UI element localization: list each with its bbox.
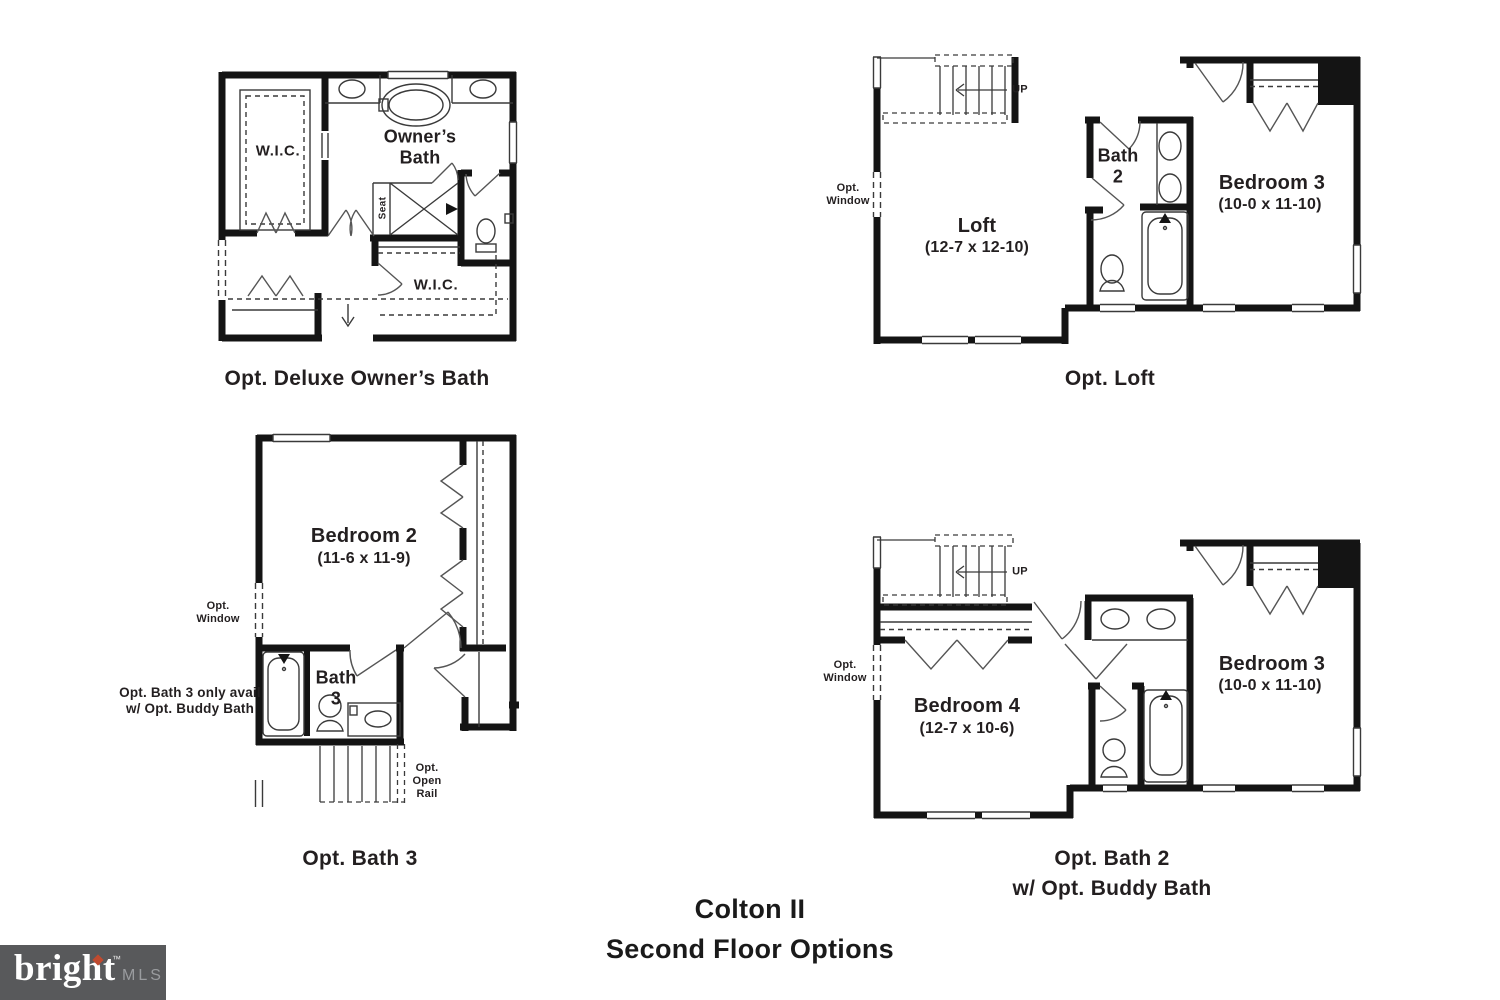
plan-deluxe-owners-bath: W.I.C. Owner’s Bath Seat W.I.C.: [210, 60, 525, 350]
room-label-owners-bath: Owner’s Bath: [384, 126, 456, 167]
closet: [1250, 80, 1318, 131]
caption-opt-loft: Opt. Loft: [1065, 364, 1155, 394]
room-label-bedroom3: Bedroom 3: [1219, 172, 1325, 194]
brightmls-wordmark: bright: [14, 947, 116, 990]
sheet-title: Colton II Second Floor Options: [606, 889, 894, 969]
stairs-down-arrow-icon: [342, 304, 354, 326]
label-opt-window: Opt. Window: [823, 659, 866, 685]
label-shower-seat: Seat: [377, 197, 388, 220]
walls: [222, 72, 516, 341]
stairs: [877, 535, 1013, 605]
brightmls-logo: bright ™ MLS: [0, 945, 166, 1000]
plan-opt-loft: UP Opt. Window Loft (12-7 x 12-10) Bath …: [820, 45, 1380, 355]
plan-opt-bath3-drawing: [120, 425, 525, 820]
room-label-loft: Loft: [958, 215, 997, 237]
caption-deluxe-owners-bath: Opt. Deluxe Owner’s Bath: [224, 364, 489, 394]
room-label-bath2: Bath 2: [1098, 145, 1139, 186]
room-label-bedroom2: Bedroom 2: [311, 525, 417, 547]
room-dims-bedroom2: (11-6 x 11-9): [317, 550, 410, 568]
label-opt-open-rail: Opt. Open Rail: [413, 762, 442, 802]
room-dims-bedroom4: (12-7 x 10-6): [919, 720, 1014, 738]
windows: [256, 434, 331, 807]
fixtures: [228, 75, 513, 315]
floorplan-sheet: W.I.C. Owner’s Bath Seat W.I.C. Opt. Del…: [0, 0, 1500, 1000]
plan-opt-bath2-buddy-bath: UP Opt. Window Bedroom 4 (12-7 x 10-6) B…: [820, 525, 1380, 835]
label-bath3-availability-note: Opt. Bath 3 only avail w/ Opt. Buddy Bat…: [119, 685, 261, 717]
room-label-wic-lower: W.I.C.: [414, 278, 458, 295]
label-stairs-up: UP: [1012, 565, 1028, 578]
room-dims-bedroom3: (10-0 x 11-10): [1218, 196, 1321, 214]
label-stairs-up: UP: [1012, 83, 1028, 96]
room-dims-loft: (12-7 x 12-10): [925, 239, 1029, 257]
stairs: [877, 55, 1013, 123]
room-label-bedroom3: Bedroom 3: [1219, 653, 1325, 675]
plan-opt-bath3: Bedroom 2 (11-6 x 11-9) Opt. Window Bath…: [120, 425, 525, 820]
room-label-bedroom4: Bedroom 4: [914, 695, 1020, 717]
brightmls-mls-text: MLS: [122, 967, 164, 985]
stairs: [320, 744, 405, 806]
plan-deluxe-owners-bath-drawing: [210, 60, 525, 350]
closet: [441, 441, 483, 727]
room-dims-bedroom3: (10-0 x 11-10): [1218, 677, 1321, 695]
chase: [1318, 543, 1357, 588]
caption-opt-bath2-buddy-bath: Opt. Bath 2 w/ Opt. Buddy Bath: [1012, 844, 1211, 904]
room-label-bath3: Bath 3: [316, 667, 357, 708]
chase: [1318, 60, 1357, 105]
shower-arrow-icon: [446, 203, 458, 215]
doors: [350, 612, 465, 697]
label-opt-window: Opt. Window: [826, 182, 869, 208]
label-opt-window: Opt. Window: [196, 600, 239, 626]
trademark-symbol: ™: [112, 954, 121, 964]
room-label-wic-upper: W.I.C.: [256, 144, 300, 161]
caption-opt-bath3: Opt. Bath 3: [302, 844, 417, 874]
